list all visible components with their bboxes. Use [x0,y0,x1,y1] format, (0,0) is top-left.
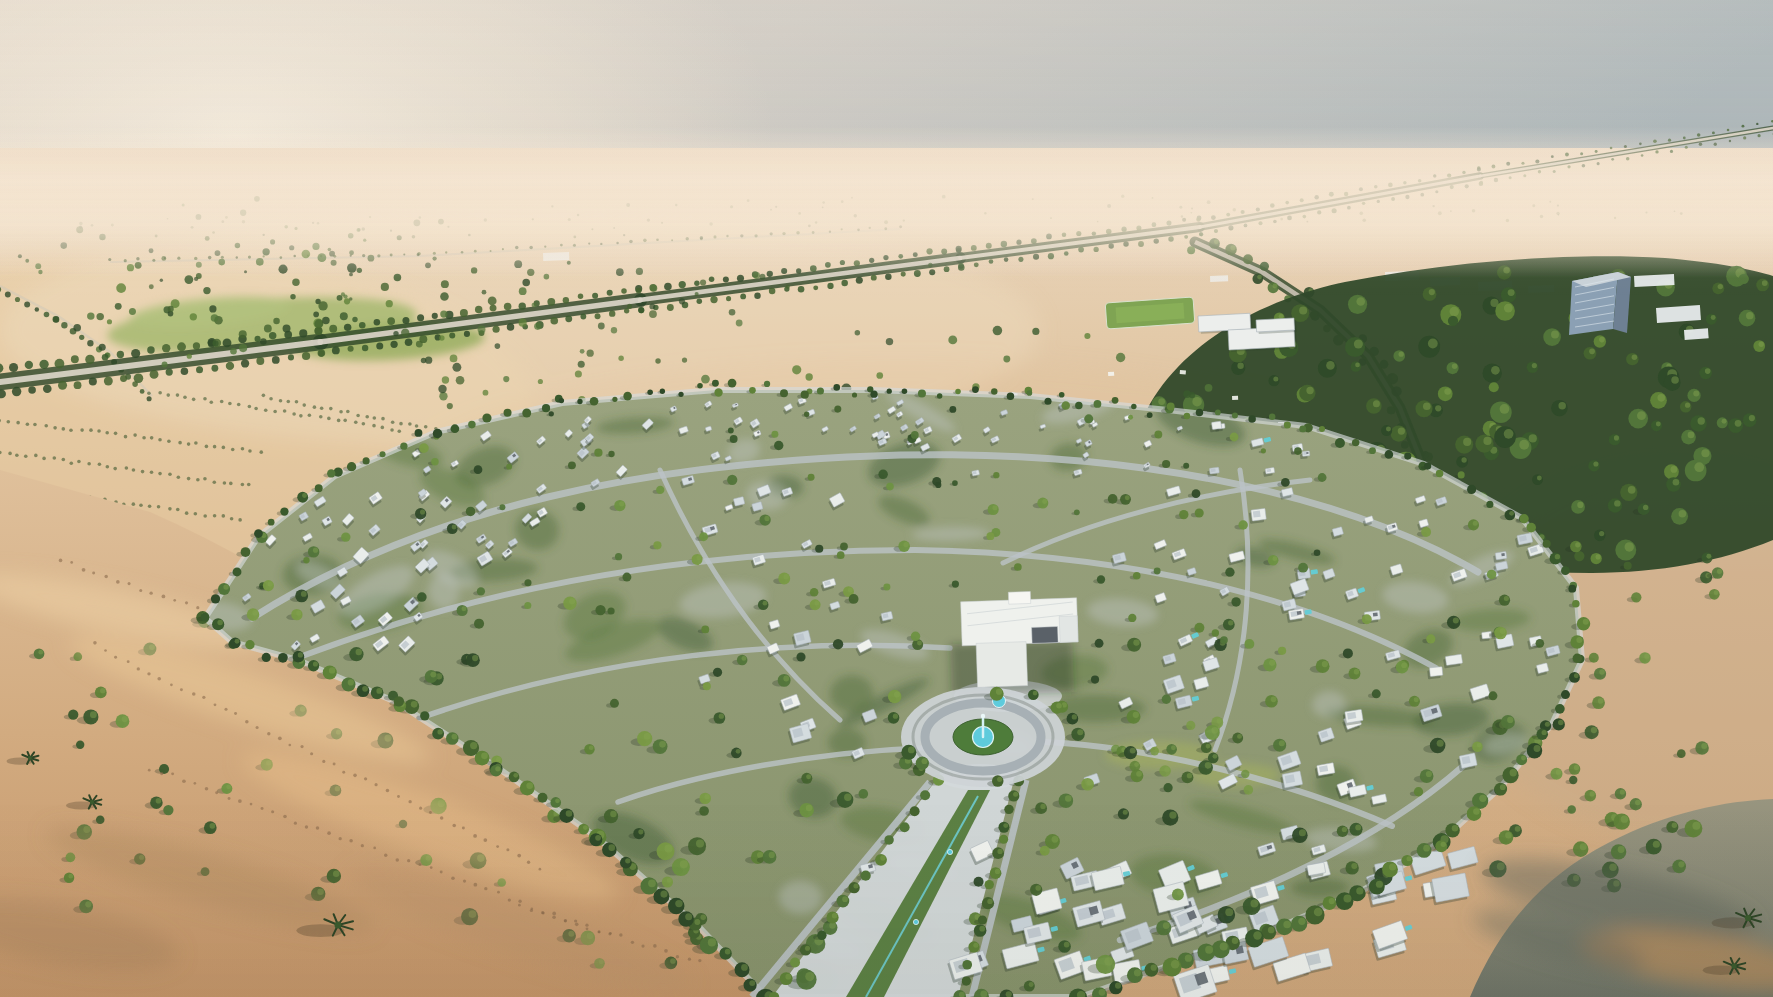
lighting-overlay [0,0,1773,997]
aerial-masterplan-render [0,0,1773,997]
scene-svg [0,0,1773,997]
